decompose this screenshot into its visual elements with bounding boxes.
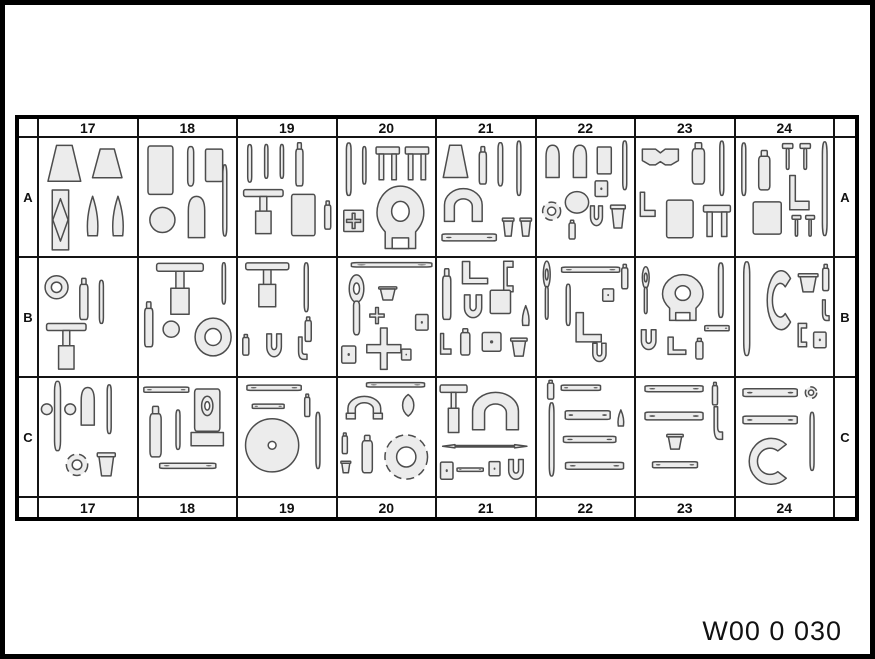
bottle-icon bbox=[443, 269, 451, 320]
yoke-puller-icon bbox=[377, 186, 424, 248]
row-label-left-C: C bbox=[19, 378, 39, 498]
cone-icon bbox=[113, 196, 123, 235]
bottle-icon bbox=[305, 394, 310, 416]
bottle-icon bbox=[325, 201, 331, 229]
slim-bar-icon bbox=[346, 143, 351, 195]
column-footer-18: 18 bbox=[139, 498, 239, 517]
yoke-puller-icon bbox=[663, 275, 704, 321]
slim-bar-icon bbox=[566, 284, 570, 325]
slim-bar-icon bbox=[498, 143, 503, 186]
rect-block-icon bbox=[205, 149, 222, 181]
double-arrow-bar-icon bbox=[443, 445, 527, 448]
mounting-plate-icon bbox=[247, 385, 301, 390]
rect-block-icon bbox=[597, 147, 611, 174]
open-end-wrench-icon bbox=[509, 459, 524, 479]
bottle-icon bbox=[149, 406, 160, 457]
t-puller-icon bbox=[244, 190, 283, 234]
small-box-icon bbox=[595, 181, 607, 197]
cell-C19 bbox=[238, 378, 338, 498]
cup-icon bbox=[378, 287, 396, 300]
ring-wrench-icon bbox=[642, 267, 649, 314]
bowtie-block-icon bbox=[642, 149, 678, 165]
l-bracket-icon bbox=[576, 313, 601, 342]
t-pin-icon bbox=[782, 144, 792, 170]
column-footer-17: 17 bbox=[39, 498, 139, 517]
slim-bar-icon bbox=[719, 263, 724, 317]
l-bracket-icon bbox=[789, 175, 808, 209]
cup-icon bbox=[340, 461, 350, 472]
rect-block-icon bbox=[147, 146, 172, 194]
bottle-icon bbox=[712, 382, 717, 404]
cup-icon bbox=[610, 205, 625, 228]
cell-B18 bbox=[139, 258, 239, 378]
column-footer-22: 22 bbox=[537, 498, 637, 517]
slim-bar-icon bbox=[549, 403, 554, 476]
mounting-plate-icon bbox=[561, 385, 600, 390]
bottle-icon bbox=[479, 147, 486, 184]
cell-A21 bbox=[437, 138, 537, 258]
c-hook-icon bbox=[749, 438, 786, 484]
round-top-block-icon bbox=[573, 145, 586, 177]
u-bracket-icon bbox=[703, 205, 730, 236]
disc-icon bbox=[565, 192, 588, 214]
ring-icon bbox=[195, 318, 231, 356]
column-header-23: 23 bbox=[636, 119, 736, 138]
slim-bar-icon bbox=[99, 280, 103, 323]
cross-tool-icon bbox=[369, 307, 383, 323]
mounting-plate-icon bbox=[645, 412, 703, 420]
corner-bottom-right bbox=[835, 498, 855, 517]
u-frame-icon bbox=[346, 396, 382, 418]
bottle-icon bbox=[305, 317, 311, 341]
slim-bar-icon bbox=[55, 381, 61, 450]
column-header-17: 17 bbox=[39, 119, 139, 138]
disc-icon bbox=[65, 404, 76, 415]
cell-B17 bbox=[39, 258, 139, 378]
figure-number: W00 0 030 bbox=[702, 616, 842, 647]
mounting-plate-icon bbox=[742, 416, 796, 424]
c-clamp-icon bbox=[504, 261, 513, 292]
mounting-plate-icon bbox=[457, 468, 483, 471]
rect-block-icon bbox=[490, 290, 510, 313]
mounting-plate-icon bbox=[159, 463, 215, 468]
cell-B24 bbox=[736, 258, 836, 378]
slim-bar-icon bbox=[248, 145, 252, 182]
slim-bar-icon bbox=[304, 263, 308, 312]
cone-icon bbox=[618, 410, 624, 426]
column-footer-20: 20 bbox=[338, 498, 438, 517]
bottle-icon bbox=[692, 143, 704, 184]
column-header-24: 24 bbox=[736, 119, 836, 138]
mounting-plate-icon bbox=[442, 234, 496, 241]
cell-B22 bbox=[537, 258, 637, 378]
t-puller-icon bbox=[440, 385, 467, 432]
l-bracket-icon bbox=[668, 337, 686, 354]
slim-bar-icon bbox=[222, 263, 225, 304]
dashed-ring-icon bbox=[542, 202, 560, 220]
dashed-ring-icon bbox=[66, 454, 87, 475]
bottle-icon bbox=[822, 264, 828, 290]
mounting-plate-icon bbox=[565, 462, 623, 469]
mounting-plate-icon bbox=[143, 387, 188, 392]
column-header-21: 21 bbox=[437, 119, 537, 138]
column-footer-23: 23 bbox=[636, 498, 736, 517]
t-pin-icon bbox=[805, 215, 814, 236]
leaf-gauge-icon bbox=[402, 395, 413, 417]
cell-C24 bbox=[736, 378, 836, 498]
horseshoe-bridge-icon bbox=[444, 189, 482, 222]
j-hook-icon bbox=[822, 300, 829, 321]
mounting-plate-icon bbox=[351, 263, 431, 267]
bottle-icon bbox=[296, 143, 303, 186]
cell-C23 bbox=[636, 378, 736, 498]
mounting-plate-icon bbox=[252, 404, 284, 408]
row-label-right-A: A bbox=[835, 138, 855, 258]
block-with-ring-icon bbox=[191, 389, 223, 446]
mounting-plate-icon bbox=[742, 389, 796, 397]
l-bracket-icon bbox=[441, 334, 451, 355]
mounting-plate-icon bbox=[563, 436, 615, 442]
column-footer-21: 21 bbox=[437, 498, 537, 517]
slim-bar-icon bbox=[822, 142, 827, 236]
t-puller-icon bbox=[156, 263, 203, 314]
u-bracket-icon bbox=[405, 147, 428, 180]
t-pin-icon bbox=[800, 144, 810, 170]
slim-bar-icon bbox=[107, 385, 111, 434]
row-label-right-C: C bbox=[835, 378, 855, 498]
cup-icon bbox=[667, 434, 683, 449]
trapezoid-block-icon bbox=[48, 145, 81, 181]
cup-icon bbox=[511, 338, 527, 356]
column-header-18: 18 bbox=[139, 119, 239, 138]
cell-A22 bbox=[537, 138, 637, 258]
bottle-icon bbox=[80, 278, 88, 319]
slim-bar-icon bbox=[265, 145, 268, 179]
mounting-plate-icon bbox=[565, 411, 610, 420]
column-header-22: 22 bbox=[537, 119, 637, 138]
slim-bar-icon bbox=[517, 141, 521, 195]
mounting-plate-icon bbox=[366, 383, 424, 387]
l-bracket-icon bbox=[462, 261, 487, 283]
open-end-wrench-icon bbox=[592, 343, 605, 361]
t-puller-icon bbox=[246, 263, 289, 307]
small-box-icon bbox=[813, 332, 825, 348]
bottle-icon bbox=[547, 380, 553, 399]
c-clamp-icon bbox=[798, 323, 806, 346]
slim-bar-icon bbox=[222, 165, 226, 236]
slim-bar-icon bbox=[362, 147, 365, 184]
bottle-icon bbox=[569, 220, 575, 239]
tool-chart-page: 17 18 19 20 21 22 23 24 A A B B C bbox=[0, 0, 875, 659]
slim-bar-icon bbox=[741, 143, 745, 195]
bottle-icon bbox=[621, 264, 627, 288]
cell-A20 bbox=[338, 138, 438, 258]
ring-wrench-icon bbox=[349, 275, 364, 335]
slim-bar-icon bbox=[280, 145, 283, 179]
slim-bar-icon bbox=[187, 147, 193, 186]
ring-wrench-icon bbox=[543, 261, 550, 319]
corner-top-left bbox=[19, 119, 39, 138]
small-box-icon bbox=[482, 333, 501, 352]
disc-icon bbox=[163, 321, 179, 337]
large-disc-icon bbox=[246, 419, 299, 472]
column-header-20: 20 bbox=[338, 119, 438, 138]
cell-C20 bbox=[338, 378, 438, 498]
cell-A23 bbox=[636, 138, 736, 258]
l-bracket-icon bbox=[640, 192, 655, 216]
disc-icon bbox=[41, 404, 52, 415]
bottle-icon bbox=[342, 433, 347, 454]
row-label-left-A: A bbox=[19, 138, 39, 258]
round-top-block-icon bbox=[81, 387, 94, 425]
cell-C21 bbox=[437, 378, 537, 498]
row-label-left-B: B bbox=[19, 258, 39, 378]
mounting-plate-icon bbox=[705, 326, 729, 331]
slim-bar-icon bbox=[743, 262, 749, 356]
open-end-wrench-icon bbox=[590, 206, 602, 226]
bottle-icon bbox=[362, 435, 372, 472]
small-box-icon bbox=[401, 349, 410, 360]
cell-A19 bbox=[238, 138, 338, 258]
cell-A17 bbox=[39, 138, 139, 258]
mounting-plate-icon bbox=[653, 462, 698, 468]
cup-icon bbox=[97, 453, 115, 476]
open-end-wrench-icon bbox=[267, 334, 282, 357]
cell-B23 bbox=[636, 258, 736, 378]
trapezoid-block-icon bbox=[93, 149, 122, 178]
slim-bar-icon bbox=[810, 412, 814, 470]
diamond-frame-icon bbox=[52, 190, 68, 250]
open-end-wrench-icon bbox=[464, 295, 481, 318]
bottle-icon bbox=[243, 334, 249, 355]
bottle-icon bbox=[461, 329, 470, 355]
open-end-wrench-icon bbox=[641, 330, 656, 350]
cell-C18 bbox=[139, 378, 239, 498]
t-pin-icon bbox=[792, 215, 801, 236]
bottle-icon bbox=[758, 151, 769, 190]
cup-icon bbox=[798, 274, 818, 292]
j-hook-icon bbox=[714, 407, 722, 440]
corner-bottom-left bbox=[19, 498, 39, 517]
bottle-icon bbox=[144, 302, 152, 347]
small-box-icon bbox=[489, 462, 500, 476]
small-box-icon bbox=[341, 346, 355, 363]
column-footer-24: 24 bbox=[736, 498, 836, 517]
ring-icon bbox=[45, 276, 68, 299]
tool-board-grid: 17 18 19 20 21 22 23 24 A A B B C bbox=[15, 115, 859, 521]
slim-bar-icon bbox=[176, 410, 180, 449]
trapezoid-block-icon bbox=[443, 145, 468, 177]
cone-icon bbox=[522, 306, 529, 326]
small-box-icon bbox=[441, 462, 453, 479]
small-box-icon bbox=[415, 315, 427, 331]
cell-A24 bbox=[736, 138, 836, 258]
rect-block-icon bbox=[753, 202, 781, 234]
cone-icon bbox=[87, 196, 97, 235]
dashed-ring-icon bbox=[384, 435, 427, 479]
t-puller-icon bbox=[47, 323, 86, 369]
dashed-ring-icon bbox=[805, 387, 816, 398]
round-top-block-icon bbox=[188, 196, 204, 237]
cup-icon bbox=[502, 218, 513, 236]
mounting-plate-icon bbox=[561, 267, 619, 272]
small-box-icon bbox=[602, 289, 613, 301]
cup-icon bbox=[520, 218, 531, 236]
column-header-19: 19 bbox=[238, 119, 338, 138]
slim-bar-icon bbox=[316, 412, 320, 468]
u-bracket-icon bbox=[376, 147, 399, 180]
cell-C22 bbox=[537, 378, 637, 498]
cell-A18 bbox=[139, 138, 239, 258]
round-top-block-icon bbox=[546, 145, 559, 177]
c-hook-icon bbox=[767, 271, 790, 330]
slim-bar-icon bbox=[720, 141, 724, 195]
row-label-right-B: B bbox=[835, 258, 855, 378]
bottle-icon bbox=[696, 338, 703, 359]
rect-block-icon bbox=[667, 200, 694, 238]
cell-B20 bbox=[338, 258, 438, 378]
horseshoe-bridge-icon bbox=[473, 392, 519, 429]
column-footer-19: 19 bbox=[238, 498, 338, 517]
cell-B19 bbox=[238, 258, 338, 378]
cell-C17 bbox=[39, 378, 139, 498]
cell-B21 bbox=[437, 258, 537, 378]
disc-icon bbox=[149, 207, 174, 232]
corner-top-right bbox=[835, 119, 855, 138]
cross-box-icon bbox=[343, 210, 363, 231]
cross-tool-icon bbox=[366, 328, 400, 369]
slim-bar-icon bbox=[622, 141, 626, 190]
rect-block-icon bbox=[292, 194, 315, 235]
mounting-plate-icon bbox=[645, 386, 703, 392]
